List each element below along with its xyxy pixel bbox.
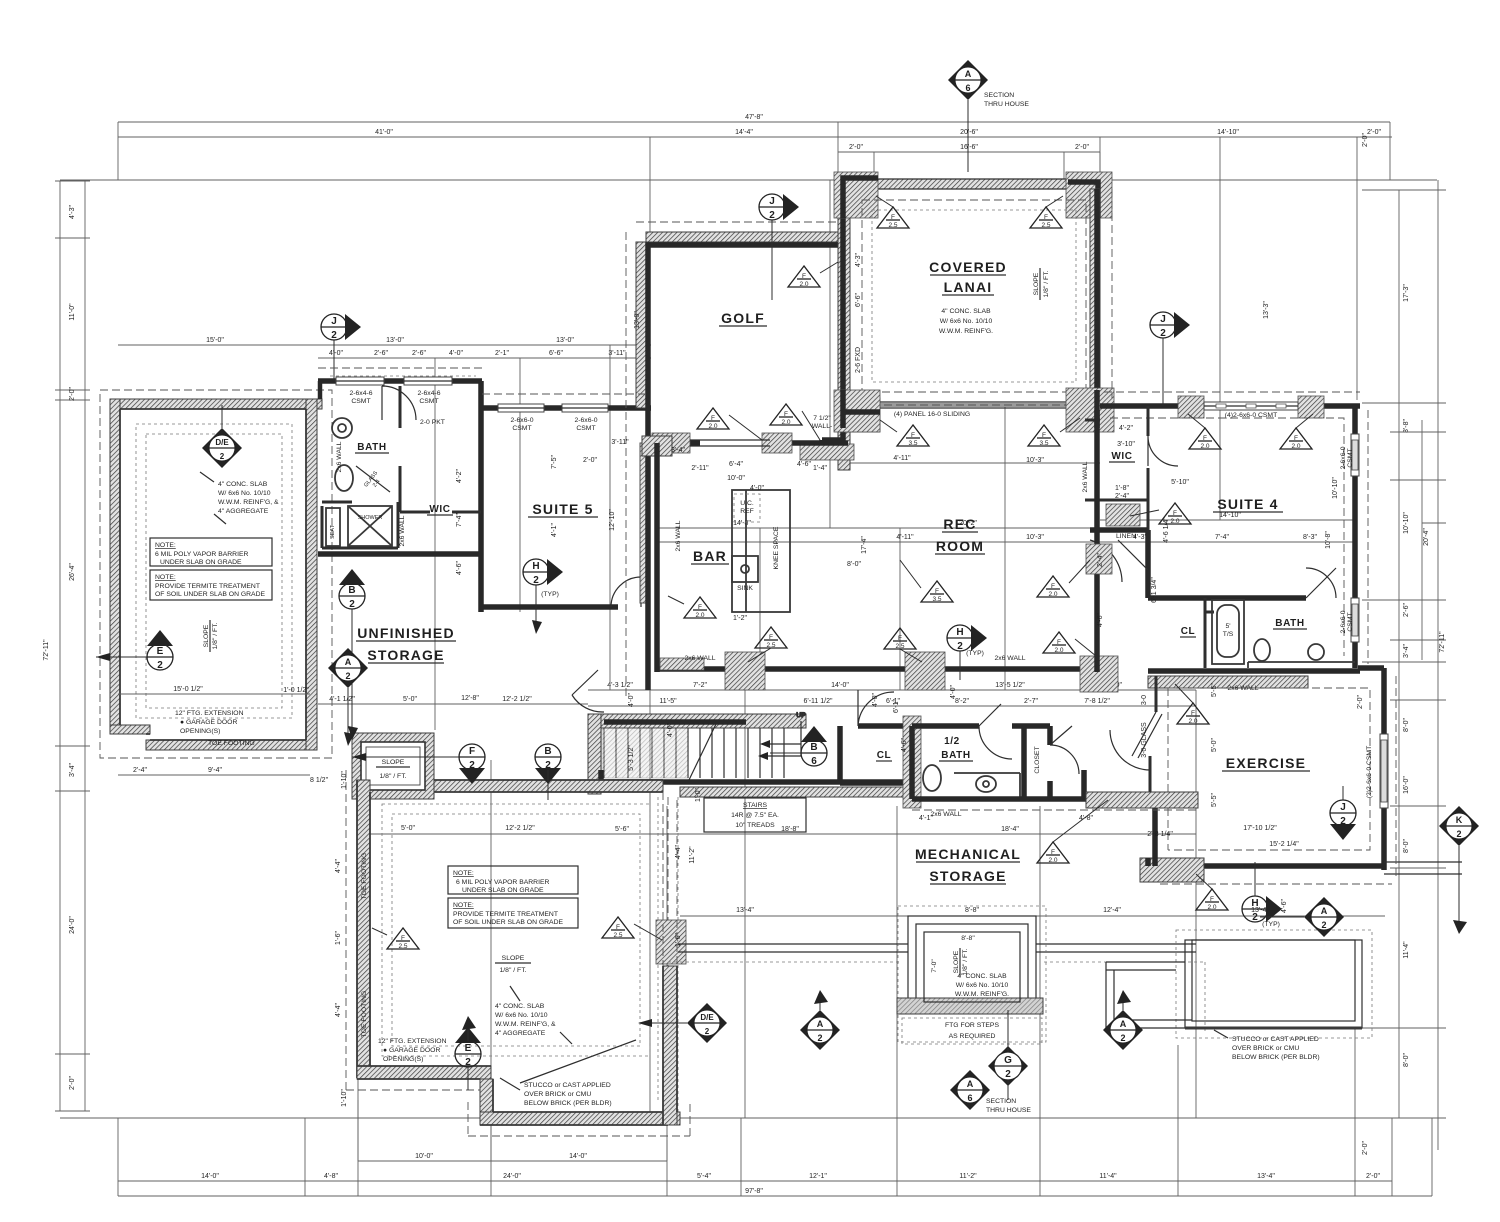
svg-text:72'-11": 72'-11" (43, 639, 50, 661)
svg-text:5'-5": 5'-5" (1211, 793, 1218, 807)
svg-text:2.5: 2.5 (766, 642, 775, 649)
svg-text:4'-8": 4'-8" (324, 1173, 338, 1180)
svg-text:1/2: 1/2 (944, 736, 960, 747)
svg-text:2'-0": 2'-0" (1367, 129, 1381, 136)
svg-text:UNDER SLAB ON GRADE: UNDER SLAB ON GRADE (160, 559, 242, 566)
svg-text:F: F (911, 432, 915, 439)
svg-text:CSMT: CSMT (576, 425, 595, 432)
svg-text:2: 2 (469, 760, 475, 771)
svg-text:D/E: D/E (700, 1013, 714, 1022)
svg-text:1'-0 1/2": 1'-0 1/2" (283, 687, 309, 694)
svg-text:2x6 WALL: 2x6 WALL (930, 811, 961, 818)
svg-text:2-6x4-6: 2-6x4-6 (417, 390, 440, 397)
svg-text:16'-0": 16'-0" (1403, 776, 1410, 794)
svg-text:J: J (1340, 802, 1346, 813)
svg-text:11'-4": 11'-4" (1099, 1173, 1117, 1180)
svg-text:15'-0 1/2": 15'-0 1/2" (173, 686, 203, 693)
svg-text:2: 2 (1321, 920, 1326, 930)
svg-text:BATH: BATH (941, 750, 970, 761)
svg-text:2'-0": 2'-0" (69, 387, 76, 401)
svg-text:2: 2 (465, 1057, 471, 1068)
svg-text:2.0: 2.0 (1200, 443, 1209, 450)
svg-text:4'-1 1/2": 4'-1 1/2" (329, 696, 355, 703)
svg-text:J: J (331, 316, 337, 327)
svg-text:F: F (1042, 432, 1046, 439)
svg-text:E: E (465, 1043, 472, 1054)
svg-text:2.0: 2.0 (1207, 904, 1216, 911)
svg-text:COVERED: COVERED (929, 259, 1007, 275)
svg-text:REC: REC (943, 516, 976, 532)
svg-text:A: A (965, 69, 972, 79)
svg-text:(TYP): (TYP) (1262, 921, 1280, 928)
svg-text:(4)2-6x6-0 CSMT: (4)2-6x6-0 CSMT (1225, 412, 1278, 419)
svg-text:SLOPE: SLOPE (203, 624, 210, 647)
svg-text:97'-8": 97'-8" (745, 1188, 763, 1195)
svg-text:SECTION: SECTION (984, 92, 1014, 99)
svg-text:F: F (784, 411, 788, 418)
svg-text:3-0: 3-0 (1141, 695, 1148, 705)
svg-text:D/E: D/E (215, 438, 229, 447)
svg-text:6'-11 1/2": 6'-11 1/2" (804, 698, 834, 705)
svg-text:2.0: 2.0 (1188, 718, 1197, 725)
svg-text:SEAT: SEAT (330, 524, 336, 539)
svg-text:47'-8": 47'-8" (745, 114, 763, 121)
svg-text:SLOPE: SLOPE (382, 759, 405, 766)
svg-text:13'-4": 13'-4" (1257, 1173, 1275, 1180)
svg-text:4'-0": 4'-0" (872, 693, 879, 707)
svg-text:13'-5 1/2": 13'-5 1/2" (995, 682, 1025, 689)
svg-text:14'-4": 14'-4" (735, 129, 753, 136)
svg-text:4" AGGREGATE: 4" AGGREGATE (495, 1030, 546, 1037)
svg-text:UNDER SLAB ON GRADE: UNDER SLAB ON GRADE (462, 887, 544, 894)
svg-text:A: A (1120, 1019, 1127, 1029)
svg-text:THRU HOUSE: THRU HOUSE (984, 101, 1029, 108)
svg-text:F: F (802, 273, 806, 280)
svg-text:8'-0": 8'-0" (847, 561, 861, 568)
svg-text:1'-10": 1'-10" (341, 1089, 348, 1107)
svg-text:7'-8 1/2": 7'-8 1/2" (1084, 698, 1110, 705)
svg-text:2: 2 (331, 330, 337, 341)
svg-text:4" CONC. SLAB: 4" CONC. SLAB (941, 308, 991, 315)
svg-text:2.0: 2.0 (799, 281, 808, 288)
svg-text:24'-0": 24'-0" (503, 1173, 521, 1180)
svg-text:17'-3": 17'-3" (1403, 284, 1410, 302)
svg-text:F: F (769, 634, 773, 641)
svg-text:2'-0": 2'-0" (1357, 695, 1364, 709)
svg-text:2: 2 (345, 671, 350, 681)
svg-text:12" FTG. EXTENSION: 12" FTG. EXTENSION (378, 1038, 447, 1045)
svg-text:B: B (810, 742, 817, 753)
svg-text:TOE FOOTING: TOE FOOTING (361, 853, 368, 900)
svg-text:BATH: BATH (1275, 618, 1304, 629)
svg-text:2.5: 2.5 (398, 943, 407, 950)
svg-text:NOTE:: NOTE: (453, 870, 474, 877)
svg-text:2-6x6-0: 2-6x6-0 (1340, 446, 1347, 469)
svg-text:F: F (1203, 435, 1207, 442)
svg-text:13'-0": 13'-0" (386, 337, 404, 344)
svg-text:PROVIDE TERMITE TREATMENT: PROVIDE TERMITE TREATMENT (155, 583, 260, 590)
svg-text:2-6x6-0: 2-6x6-0 (510, 417, 533, 424)
svg-text:2.0: 2.0 (708, 423, 717, 430)
svg-text:4'-6": 4'-6" (901, 738, 908, 752)
svg-text:4'-11": 4'-11" (896, 534, 914, 541)
svg-text:MECHANICAL: MECHANICAL (915, 846, 1021, 862)
svg-text:(TYP): (TYP) (541, 591, 559, 598)
svg-text:SINK: SINK (737, 585, 753, 592)
svg-text:1/8" / FT.: 1/8" / FT. (212, 622, 219, 649)
svg-text:2'-0": 2'-0" (69, 1076, 76, 1090)
svg-text:2: 2 (1120, 1033, 1125, 1043)
svg-text:11'-2": 11'-2" (689, 846, 696, 864)
svg-text:ROOM: ROOM (936, 538, 984, 554)
svg-text:14'-0": 14'-0" (569, 1153, 587, 1160)
svg-text:2'-7": 2'-7" (1024, 698, 1038, 705)
svg-text:6: 6 (811, 756, 817, 767)
svg-text:3'-4": 3'-4" (69, 763, 76, 777)
svg-text:2x6 WALL: 2x6 WALL (1082, 461, 1089, 492)
svg-text:W.W.M. REINF'G.: W.W.M. REINF'G. (939, 328, 993, 335)
svg-text:13'-0": 13'-0" (634, 311, 641, 329)
svg-text:7'-2": 7'-2" (693, 682, 707, 689)
svg-text:TOE FOOTING: TOE FOOTING (208, 740, 255, 747)
svg-text:(TYP): (TYP) (966, 650, 984, 657)
svg-text:10'-0": 10'-0" (415, 1153, 433, 1160)
svg-text:2x6 WALL: 2x6 WALL (336, 441, 343, 472)
svg-text:CSMT: CSMT (351, 398, 370, 405)
svg-text:4" AGGREGATE: 4" AGGREGATE (218, 508, 269, 515)
svg-text:1'-6": 1'-6" (675, 933, 682, 947)
svg-text:4'-4": 4'-4" (335, 1003, 342, 1017)
svg-text:OVER BRICK or CMU: OVER BRICK or CMU (1232, 1045, 1299, 1052)
svg-text:15'-0": 15'-0" (206, 337, 224, 344)
svg-text:4'-6": 4'-6" (1097, 613, 1104, 627)
svg-text:2: 2 (1340, 816, 1346, 827)
svg-text:NOTE:: NOTE: (155, 574, 176, 581)
svg-text:20'-4": 20'-4" (1423, 528, 1430, 546)
svg-text:NOTE:: NOTE: (453, 902, 474, 909)
svg-text:14'-10": 14'-10" (1219, 512, 1241, 519)
svg-text:24'-0": 24'-0" (69, 916, 76, 934)
svg-text:K: K (1456, 815, 1463, 825)
svg-text:AS REQUIRED: AS REQUIRED (949, 1033, 996, 1040)
svg-text:A: A (1321, 906, 1328, 916)
svg-text:STUCCO or CAST APPLIED: STUCCO or CAST APPLIED (1232, 1036, 1319, 1043)
svg-text:1/8" / FT.: 1/8" / FT. (1043, 270, 1050, 297)
svg-text:CL: CL (877, 750, 892, 761)
svg-text:13'-4": 13'-4" (736, 907, 754, 914)
svg-text:F: F (698, 604, 702, 611)
svg-text:2'-6": 2'-6" (412, 350, 426, 357)
svg-text:2'-0": 2'-0" (583, 457, 597, 464)
svg-text:OF SOIL UNDER SLAB ON GRADE: OF SOIL UNDER SLAB ON GRADE (453, 919, 563, 926)
svg-text:H: H (956, 627, 963, 638)
svg-text:STUCCO or CAST APPLIED: STUCCO or CAST APPLIED (524, 1082, 611, 1089)
svg-text:2.0: 2.0 (1291, 443, 1300, 450)
svg-text:WIC: WIC (1111, 451, 1132, 462)
svg-text:2x6 WALL: 2x6 WALL (994, 655, 1025, 662)
svg-text:12'-8": 12'-8" (461, 695, 479, 702)
svg-text:4'-0": 4'-0" (628, 693, 635, 707)
svg-text:1'-6": 1'-6" (335, 931, 342, 945)
svg-text:2'-0": 2'-0" (849, 144, 863, 151)
svg-text:9'-4": 9'-4" (208, 767, 222, 774)
svg-text:8'-8": 8'-8" (961, 935, 975, 942)
svg-text:18'-4": 18'-4" (1001, 826, 1019, 833)
svg-text:8'-8": 8'-8" (965, 907, 979, 914)
svg-text:F: F (1051, 849, 1055, 856)
svg-text:14'-0": 14'-0" (201, 1173, 219, 1180)
svg-text:LINEN: LINEN (1116, 533, 1136, 540)
svg-text:12'-4": 12'-4" (1103, 907, 1121, 914)
svg-text:8'-3": 8'-3" (1303, 534, 1317, 541)
svg-text:12" FTG. EXTENSION: 12" FTG. EXTENSION (175, 710, 244, 717)
svg-text:5': 5' (1225, 623, 1230, 630)
svg-text:3'-10": 3'-10" (1117, 441, 1135, 448)
svg-text:2: 2 (1456, 829, 1461, 839)
svg-text:3-0 GLASS: 3-0 GLASS (1141, 722, 1148, 758)
svg-text:2'-11": 2'-11" (691, 465, 709, 472)
svg-text:2-6x4-6: 2-6x4-6 (349, 390, 372, 397)
svg-text:11'-5": 11'-5" (659, 698, 677, 705)
svg-text:2: 2 (705, 1027, 710, 1036)
svg-text:2-6 FXD: 2-6 FXD (855, 347, 862, 373)
svg-text:3'-4": 3'-4" (1403, 644, 1410, 658)
svg-text:13'-0": 13'-0" (556, 337, 574, 344)
svg-text:2: 2 (1252, 912, 1258, 923)
svg-text:CSMT: CSMT (1347, 612, 1354, 631)
svg-text:LANAI: LANAI (944, 279, 993, 295)
svg-text:SUITE 4: SUITE 4 (1217, 496, 1278, 512)
svg-text:H: H (1251, 898, 1258, 909)
svg-text:5'-3 1/2": 5'-3 1/2" (628, 745, 635, 771)
svg-text:OVER BRICK or CMU: OVER BRICK or CMU (524, 1091, 591, 1098)
svg-text:7'-4": 7'-4" (1215, 534, 1229, 541)
svg-text:E: E (157, 646, 164, 657)
svg-text:10" TREADS: 10" TREADS (735, 822, 775, 829)
svg-text:2: 2 (817, 1033, 822, 1043)
svg-text:SHOWER: SHOWER (358, 515, 383, 521)
svg-text:WALL-: WALL- (812, 423, 833, 430)
svg-text:4" CONC. SLAB: 4" CONC. SLAB (495, 1003, 545, 1010)
svg-text:2'-1": 2'-1" (495, 350, 509, 357)
svg-text:2'-6": 2'-6" (374, 350, 388, 357)
svg-text:CL: CL (1181, 626, 1196, 637)
svg-text:4'-4": 4'-4" (675, 845, 682, 859)
svg-text:10'-0": 10'-0" (727, 475, 745, 482)
svg-text:SLOPE: SLOPE (953, 950, 960, 973)
svg-text:2: 2 (533, 575, 539, 586)
svg-text:2.0: 2.0 (1170, 518, 1179, 525)
svg-text:STAIRS: STAIRS (743, 802, 768, 809)
svg-text:OF SOIL UNDER SLAB ON GRADE: OF SOIL UNDER SLAB ON GRADE (155, 591, 265, 598)
svg-text:14'-0": 14'-0" (831, 682, 849, 689)
svg-text:B: B (544, 746, 551, 757)
svg-text:6 MIL POLY VAPOR BARRIER: 6 MIL POLY VAPOR BARRIER (456, 879, 550, 886)
svg-text:● GARAGE DOOR: ● GARAGE DOOR (180, 719, 237, 726)
svg-text:7'-5": 7'-5" (551, 455, 558, 469)
svg-text:F: F (711, 415, 715, 422)
svg-text:4'-3": 4'-3" (69, 205, 76, 219)
svg-text:F: F (1051, 583, 1055, 590)
svg-text:2x6 WALL: 2x6 WALL (1227, 685, 1258, 692)
svg-text:T/S: T/S (1223, 631, 1234, 638)
svg-text:W.W.M. REINF'G, &: W.W.M. REINF'G, & (218, 499, 279, 506)
svg-text:F: F (1294, 435, 1298, 442)
svg-text:10'-3": 10'-3" (1026, 457, 1044, 464)
svg-text:12'-1": 12'-1" (809, 1173, 827, 1180)
svg-text:16'-6": 16'-6" (960, 144, 978, 151)
svg-text:W/ 6x6 No. 10/10: W/ 6x6 No. 10/10 (495, 1012, 548, 1019)
svg-text:W/ 6x6 No. 10/10: W/ 6x6 No. 10/10 (218, 490, 271, 497)
svg-text:4'-2": 4'-2" (1119, 425, 1133, 432)
svg-text:W.W.M. REINF'G, &: W.W.M. REINF'G, & (495, 1021, 556, 1028)
svg-text:2.0: 2.0 (781, 419, 790, 426)
svg-text:F: F (891, 214, 895, 221)
svg-text:F: F (935, 588, 939, 595)
svg-text:2: 2 (1160, 328, 1166, 339)
svg-text:H: H (532, 561, 539, 572)
svg-text:2'-4": 2'-4" (1097, 553, 1104, 567)
svg-text:CLOSET: CLOSET (1034, 746, 1041, 773)
svg-text:5'-10": 5'-10" (1171, 479, 1189, 486)
svg-text:B: B (348, 585, 355, 596)
svg-text:KNEE SPACE: KNEE SPACE (773, 526, 780, 569)
svg-text:EXERCISE: EXERCISE (1226, 755, 1306, 771)
svg-text:4'-4": 4'-4" (335, 859, 342, 873)
svg-text:6'-1": 6'-1" (893, 699, 900, 713)
svg-text:1'-0": 1'-0" (695, 788, 702, 802)
svg-text:4'-0": 4'-0" (750, 485, 764, 492)
svg-text:3'-11": 3'-11" (608, 350, 626, 357)
svg-text:72'-11": 72'-11" (1439, 631, 1446, 653)
svg-text:W/ 6x6 No. 10/10: W/ 6x6 No. 10/10 (956, 982, 1009, 989)
svg-text:8'-0": 8'-0" (1403, 718, 1410, 732)
svg-text:2'-0": 2'-0" (1075, 144, 1089, 151)
svg-text:17'-10 1/2": 17'-10 1/2" (1243, 825, 1277, 832)
svg-text:2x6 WALL: 2x6 WALL (684, 655, 715, 662)
svg-text:UP: UP (796, 712, 806, 719)
svg-text:5'-6": 5'-6" (615, 826, 629, 833)
svg-text:10'-10": 10'-10" (1403, 512, 1410, 534)
svg-text:F: F (1057, 639, 1061, 646)
svg-text:UNFINISHED: UNFINISHED (357, 625, 455, 641)
svg-text:12'-2 1/2": 12'-2 1/2" (505, 825, 535, 832)
svg-text:14'-10": 14'-10" (1217, 129, 1239, 136)
svg-text:F: F (1191, 710, 1195, 717)
svg-text:17'-4": 17'-4" (861, 536, 868, 554)
svg-text:TOE FOOTING: TOE FOOTING (361, 991, 368, 1038)
svg-text:2: 2 (545, 760, 551, 771)
svg-text:6'-6": 6'-6" (855, 293, 862, 307)
svg-text:GOLF: GOLF (721, 310, 765, 326)
svg-text:4'-3 1/2": 4'-3 1/2" (607, 682, 633, 689)
svg-text:8 1/2": 8 1/2" (310, 777, 329, 784)
svg-text:3'-4": 3'-4" (671, 447, 685, 454)
svg-text:1/8" / FT.: 1/8" / FT. (962, 948, 969, 975)
svg-text:2'-0": 2'-0" (1362, 133, 1369, 147)
svg-text:2'-4": 2'-4" (1115, 493, 1129, 500)
svg-text:4'-1": 4'-1" (551, 523, 558, 537)
svg-text:6: 6 (967, 1093, 972, 1103)
svg-text:BELOW BRICK (PER BLDR): BELOW BRICK (PER BLDR) (1232, 1054, 1320, 1061)
svg-text:4'-6 1/4": 4'-6 1/4" (1163, 517, 1170, 543)
svg-text:F: F (469, 746, 475, 757)
svg-text:W.W.M. REINF'G.: W.W.M. REINF'G. (955, 991, 1009, 998)
svg-text:12'-10": 12'-10" (609, 509, 616, 531)
svg-text:J: J (769, 196, 775, 207)
svg-text:2-6x6-0: 2-6x6-0 (1340, 610, 1347, 633)
svg-text:THRU HOUSE: THRU HOUSE (986, 1107, 1031, 1114)
svg-text:PROVIDE TERMITE TREATMENT: PROVIDE TERMITE TREATMENT (453, 911, 558, 918)
svg-text:2: 2 (1005, 1069, 1011, 1080)
svg-text:4" CONC. SLAB: 4" CONC. SLAB (957, 973, 1007, 980)
svg-text:F: F (1044, 214, 1048, 221)
svg-text:2'-0": 2'-0" (1362, 1141, 1369, 1155)
svg-text:1'-4": 1'-4" (813, 465, 827, 472)
svg-text:4'-0": 4'-0" (449, 350, 463, 357)
svg-text:1'-8": 1'-8" (1115, 485, 1129, 492)
svg-text:2'-8 1/4": 2'-8 1/4" (1147, 831, 1173, 838)
svg-text:4'-3": 4'-3" (855, 253, 862, 267)
svg-text:2'-4": 2'-4" (133, 767, 147, 774)
svg-text:SLOPE: SLOPE (1033, 272, 1040, 295)
svg-text:WIC: WIC (429, 504, 450, 515)
svg-text:4'-1": 4'-1" (919, 815, 933, 822)
svg-text:26'-4": 26'-4" (69, 563, 76, 581)
svg-text:U.C.: U.C. (740, 500, 754, 507)
svg-text:NOTE:: NOTE: (155, 542, 176, 549)
svg-text:2-6x6-0: 2-6x6-0 (574, 417, 597, 424)
svg-text:8'-2": 8'-2" (955, 698, 969, 705)
svg-text:1/8" / FT.: 1/8" / FT. (380, 773, 407, 780)
svg-text:2: 2 (769, 210, 775, 221)
svg-text:2: 2 (157, 660, 163, 671)
svg-text:REF: REF (740, 508, 754, 515)
svg-text:CSMT: CSMT (1347, 448, 1354, 467)
svg-text:7 1/2": 7 1/2" (813, 415, 831, 422)
svg-text:4'-2": 4'-2" (456, 469, 463, 483)
svg-text:W/ 6x6 No. 10/10: W/ 6x6 No. 10/10 (940, 318, 993, 325)
svg-text:4'-0": 4'-0" (667, 723, 674, 737)
svg-text:BAR: BAR (693, 548, 727, 564)
svg-text:SLOPE: SLOPE (502, 955, 525, 962)
svg-text:F: F (616, 924, 620, 931)
svg-text:BELOW BRICK (PER BLDR): BELOW BRICK (PER BLDR) (524, 1100, 612, 1107)
svg-text:BATH: BATH (357, 442, 386, 453)
svg-text:2x6 WALL: 2x6 WALL (675, 520, 682, 551)
svg-text:8'-0": 8'-0" (1403, 839, 1410, 853)
svg-text:OPENING(S): OPENING(S) (180, 728, 220, 735)
svg-text:G: G (1004, 1055, 1012, 1066)
svg-text:F: F (1173, 510, 1177, 517)
svg-text:F: F (401, 935, 405, 942)
svg-text:6 MIL POLY VAPOR BARRIER: 6 MIL POLY VAPOR BARRIER (155, 551, 249, 558)
svg-text:5'-5": 5'-5" (1211, 683, 1218, 697)
svg-text:FTG FOR STEPS: FTG FOR STEPS (945, 1022, 999, 1029)
svg-text:5'-4": 5'-4" (697, 1173, 711, 1180)
svg-text:5'-0": 5'-0" (401, 825, 415, 832)
svg-text:7'-4": 7'-4" (456, 513, 463, 527)
svg-text:5'-0": 5'-0" (1211, 738, 1218, 752)
svg-text:5'-0": 5'-0" (403, 696, 417, 703)
svg-text:2.5: 2.5 (613, 932, 622, 939)
svg-text:CSMT: CSMT (419, 398, 438, 405)
svg-text:F: F (898, 635, 902, 642)
svg-text:2'-6": 2'-6" (1403, 603, 1410, 617)
svg-text:12'-2 1/2": 12'-2 1/2" (502, 696, 532, 703)
svg-text:2.0: 2.0 (1054, 647, 1063, 654)
svg-text:J: J (1160, 314, 1166, 325)
